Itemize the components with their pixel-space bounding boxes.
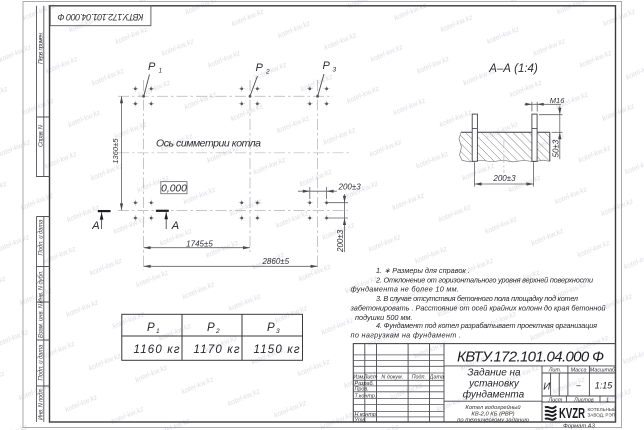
svg-text:3: 3 — [276, 328, 280, 335]
svg-text:1:15: 1:15 — [595, 381, 614, 391]
svg-text:Листов: Листов — [573, 397, 594, 403]
svg-text:P: P — [147, 322, 155, 334]
svg-text:Справ. N: Справ. N — [39, 124, 45, 147]
svg-text:ЗАВОД, РЭП: ЗАВОД, РЭП — [588, 413, 616, 418]
svg-text:1170 кг: 1170 кг — [194, 344, 240, 356]
svg-text:по нагрузкам на фундамент .: по нагрузкам на фундамент . — [351, 331, 462, 340]
svg-text:1160 кг: 1160 кг — [134, 344, 180, 356]
svg-text:1. ∗ Размеры для справок .: 1. ∗ Размеры для справок . — [376, 266, 470, 275]
svg-text:КВ-2,0 КБ (РВР): КВ-2,0 КБ (РВР) — [471, 411, 514, 417]
svg-text:по техническому заданию: по техническому заданию — [457, 417, 529, 423]
svg-text:Т.контр.: Т.контр. — [355, 393, 377, 399]
svg-text:Пров.: Пров. — [355, 387, 369, 393]
svg-text:Дата: Дата — [429, 375, 444, 381]
svg-text:0,000: 0,000 — [161, 183, 187, 194]
svg-text:3: 3 — [333, 66, 337, 73]
svg-text:Лист: Лист — [363, 375, 378, 381]
svg-text:фундамента: фундамента — [463, 389, 525, 401]
svg-text:Лист: Лист — [548, 397, 563, 403]
svg-text:1: 1 — [159, 67, 163, 74]
svg-text:Перв. примен.: Перв. примен. — [39, 32, 45, 64]
svg-text:–: – — [575, 381, 581, 390]
svg-text:Взам. инв. N: Взам. инв. N — [39, 303, 45, 338]
svg-text:1: 1 — [156, 328, 160, 335]
svg-text:А–А (1:4): А–А (1:4) — [488, 63, 538, 75]
svg-text:50±3: 50±3 — [552, 139, 561, 157]
svg-text:Формат А3: Формат А3 — [563, 424, 595, 430]
svg-text:фундамента не более 10 мм.: фундамента не более 10 мм. — [351, 285, 460, 294]
svg-text:Задание на: Задание на — [467, 368, 521, 379]
svg-text:P: P — [148, 61, 156, 73]
svg-text:KVZR: KVZR — [559, 406, 585, 422]
svg-text:4. Фундамент под котел разраб: 4. Фундамент под котел разрабатывает про… — [376, 321, 597, 330]
svg-text:забетонировать . Расстояние от: забетонировать . Расстояние от осей край… — [350, 304, 606, 313]
svg-text:200±3: 200±3 — [492, 174, 516, 183]
svg-text:N докум.: N докум. — [381, 375, 403, 381]
svg-text:P: P — [267, 322, 275, 334]
svg-text:2860±5: 2860±5 — [261, 257, 289, 266]
svg-text:И: И — [543, 382, 551, 393]
svg-text:Котел водогрейный: Котел водогрейный — [465, 404, 521, 411]
svg-text:1150 кг: 1150 кг — [254, 344, 300, 356]
svg-text:1360±5: 1360±5 — [111, 138, 120, 164]
svg-text:Подп. и дата: Подп. и дата — [39, 219, 45, 256]
svg-text:Масса: Масса — [571, 367, 587, 373]
svg-text:Подп.: Подп. — [412, 375, 426, 381]
svg-text:2: 2 — [215, 328, 220, 335]
svg-text:A: A — [91, 220, 99, 232]
svg-text:КВТУ.172.101.04.000 Ф: КВТУ.172.101.04.000 Ф — [58, 12, 144, 22]
svg-text:Подп. и дата: Подп. и дата — [39, 344, 45, 381]
svg-text:P: P — [207, 322, 215, 334]
svg-text:Инв. N подл.: Инв. N подл. — [39, 388, 45, 420]
svg-text:200±3: 200±3 — [336, 229, 345, 253]
svg-text:1745±5: 1745±5 — [186, 239, 213, 248]
svg-text:Инв. N дубл.: Инв. N дубл. — [39, 271, 45, 304]
svg-text:A: A — [171, 220, 179, 232]
svg-text:P: P — [323, 60, 331, 72]
svg-text:1: 1 — [606, 397, 609, 403]
svg-text:установку: установку — [468, 378, 520, 389]
svg-text:Ось симметрии котла: Ось симметрии котла — [156, 138, 261, 150]
svg-text:КОТЕЛЬНЫЙ: КОТЕЛЬНЫЙ — [588, 405, 617, 412]
svg-text:2. Отклонение от горизонтальн: 2. Отклонение от горизонтального уровня … — [375, 275, 593, 284]
svg-text:КВТУ.172.101.04.000 Ф: КВТУ.172.101.04.000 Ф — [457, 348, 604, 365]
svg-text:200±3: 200±3 — [338, 182, 362, 191]
svg-text:2: 2 — [265, 69, 270, 76]
svg-text:Масштаб: Масштаб — [590, 367, 616, 373]
svg-text:P: P — [256, 62, 264, 74]
svg-text:М16: М16 — [550, 96, 565, 105]
svg-text:3. В случае отсутствия бетонн: 3. В случае отсутствия бетонного пола пл… — [376, 294, 578, 303]
svg-text:Лит.: Лит. — [548, 367, 562, 373]
svg-text:Утв.: Утв. — [354, 417, 367, 423]
